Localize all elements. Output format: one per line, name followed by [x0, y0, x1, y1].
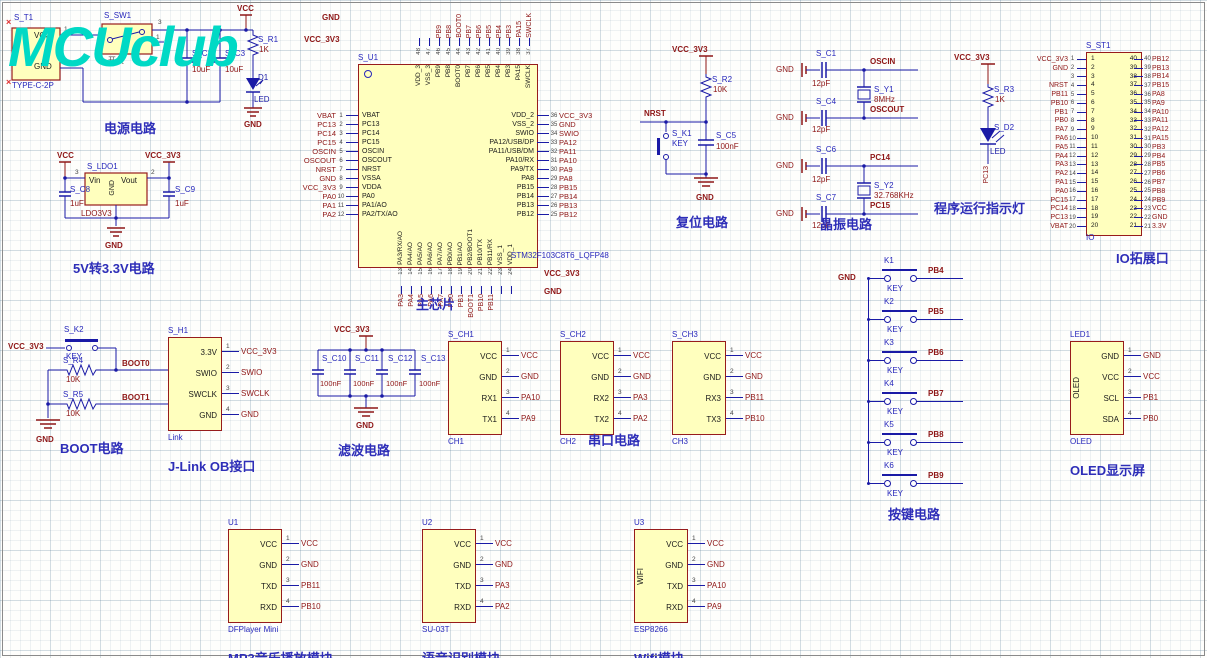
chip-bottom-net[interactable] — [496, 286, 506, 294]
vcc33-port[interactable]: VCC_3V3 — [954, 54, 990, 62]
module-pin[interactable]: 3PA10 — [688, 575, 726, 596]
chip-designator[interactable]: S_U1 — [358, 54, 378, 62]
chip-bottom-net[interactable]: BOOT1 — [466, 286, 476, 318]
schematic-sheet: MCUclub S_T1 VCC GND 1 — [0, 0, 1207, 658]
io-pin[interactable]: 34PA10 — [1134, 108, 1192, 117]
chip-pin[interactable]: VBAT1 — [296, 111, 358, 120]
key-designator: K6 — [884, 462, 894, 470]
voice-module[interactable]: U2 VCCGNDTXDRXD 1VCC 2GND 3PA3 4PA2 SU-0… — [422, 518, 542, 658]
ldo-title: 5V转3.3V电路 — [73, 262, 155, 275]
chip-pin[interactable]: 33PA12 — [537, 138, 599, 147]
chip-top-net[interactable]: SWCLK — [524, 13, 534, 46]
io-pin[interactable]: PA115 — [1028, 178, 1086, 187]
chip-pin[interactable]: 31PA10 — [537, 156, 599, 165]
key-designator: K4 — [884, 380, 894, 388]
module-pin[interactable]: 3PA3 — [476, 575, 513, 596]
vcc33-port[interactable]: VCC_3V3 — [334, 326, 370, 334]
io-pin[interactable]: 32PA12 — [1134, 125, 1192, 134]
uart-ch2-module[interactable]: S_CH2 VCCGNDRX2TX2 1VCC 2GND 3PA3 4PA2 C… — [560, 330, 680, 446]
gnd-port[interactable]: GND — [322, 14, 340, 22]
gnd-port[interactable]: GND — [544, 288, 562, 296]
module-pin[interactable]: 2GND — [476, 554, 513, 575]
r4-designator[interactable]: S_R4 — [63, 357, 83, 365]
module-pin[interactable]: 2GND — [726, 366, 765, 387]
vcc33-port[interactable]: VCC_3V3 — [544, 270, 580, 278]
net-label[interactable]: OSCOUT — [870, 106, 904, 114]
io-pin[interactable]: PA214 — [1028, 169, 1086, 178]
chip-part-number: STM32F103C8T6_LQFP48 — [511, 252, 609, 260]
chip-bottom-net[interactable]: PB1 — [456, 286, 466, 307]
t1-footprint: TYPE-C-2P — [12, 82, 54, 90]
io-pin[interactable]: 39PB13 — [1134, 64, 1192, 73]
key-net-label: PB4 — [928, 267, 944, 275]
key-switch[interactable]: K1 KEY PB4 — [868, 256, 978, 297]
chip-right-pins: 36VCC_3V3 35GND 34SWIO 33PA12 32PA11 31P… — [537, 111, 599, 219]
chip-top-net[interactable]: PB9 — [434, 25, 444, 46]
k1-designator[interactable]: S_K1 — [672, 130, 692, 138]
gnd-port[interactable]: GND — [776, 114, 794, 122]
chip-pin[interactable]: 29PA8 — [537, 174, 599, 183]
gnd-port[interactable]: GND — [776, 162, 794, 170]
chip-bottom-net[interactable]: PB11 — [486, 286, 496, 311]
vcc-port[interactable]: VCC — [237, 5, 254, 13]
ldo-circuit[interactable]: VCC VCC_3V3 S_LDO1 Vin Vout GND 3 2 S_C8… — [45, 148, 235, 282]
module-pin[interactable]: 1VCC — [502, 345, 540, 366]
gnd-port[interactable]: GND — [36, 436, 54, 444]
chip-pin[interactable]: PC143 — [296, 129, 358, 138]
main-chip-block[interactable]: GND VCC_3V3 PB9PB8BOOT0PB7PB6PB5PB4PB3PA… — [296, 8, 626, 320]
chip-top-net[interactable]: PB5 — [484, 25, 494, 46]
module-pin[interactable]: 3PB1 — [1124, 387, 1161, 408]
chip-pin[interactable]: 32PA11 — [537, 147, 599, 156]
module-pin[interactable]: 3PB11 — [726, 387, 765, 408]
chip-body[interactable]: VDD_3VSS_3PB9PB8BOOT0PB7PB6PB5PB4PB3PA15… — [358, 64, 538, 268]
chip-pin[interactable]: PA111 — [296, 201, 358, 210]
module-footprint: Link — [168, 433, 288, 442]
module-pin[interactable]: 3PA3 — [614, 387, 651, 408]
key-designator: K1 — [884, 257, 894, 265]
filter-cap[interactable]: S_C10100nF — [318, 354, 351, 388]
io-pin[interactable]: 25PB8 — [1134, 187, 1192, 196]
chip-top-net[interactable]: PB4 — [494, 25, 504, 46]
io-pin[interactable]: PC1319 — [1028, 213, 1086, 222]
module-pin[interactable]: 1VCC — [614, 345, 651, 366]
io-pin[interactable]: 40PB12 — [1134, 55, 1192, 64]
io-pin[interactable]: VBAT20 — [1028, 222, 1086, 231]
module-pin[interactable]: 2GND — [614, 366, 651, 387]
cap-designator[interactable]: S_C4 — [816, 98, 836, 106]
module-pin[interactable]: 2GND — [688, 554, 726, 575]
boot-title: BOOT电路 — [60, 442, 124, 455]
module-pin[interactable]: 4PA2 — [476, 596, 513, 617]
io-pin[interactable]: 38PB14 — [1134, 73, 1192, 82]
run-led-title: 程序运行指示灯 — [934, 202, 1025, 215]
module-pin[interactable]: 2VCC — [1124, 366, 1161, 387]
key-designator: K5 — [884, 421, 894, 429]
d1-value: LED — [254, 96, 270, 104]
chip-pin[interactable]: VCC_3V39 — [296, 183, 358, 192]
chip-pin[interactable]: 30PA9 — [537, 165, 599, 174]
chip-title: 主芯片 — [416, 298, 455, 311]
reset-title: 复位电路 — [676, 216, 728, 229]
io-right-pins: 40PB12 39PB13 38PB14 37PB15 36PA8 35PA9 … — [1134, 55, 1192, 231]
chip-top-nets: PB9PB8BOOT0PB7PB6PB5PB4PB3PA15SWCLK — [414, 10, 534, 46]
power-title: 电源电路 — [104, 122, 156, 135]
io-pin[interactable]: PC1517 — [1028, 196, 1086, 205]
chip-pin[interactable]: OSCIN5 — [296, 147, 358, 156]
chip-pin[interactable]: 28PB15 — [537, 183, 599, 192]
chip-bottom-nets: PA3PA4PA5PA6PA7PB0PB1BOOT1PB10PB11 — [396, 286, 516, 314]
filter-title: 滤波电路 — [338, 444, 390, 457]
noerc-mark: × — [6, 78, 11, 87]
chip-pin[interactable]: GND8 — [296, 174, 358, 183]
crystal-group[interactable]: GND S_C1 12pF OSCIN S_Y1 8MHz S_C4 12pF … — [768, 46, 928, 142]
chip-bottom-net[interactable]: PA4 — [406, 286, 416, 307]
chip-right-names: VDD_2VSS_2SWIOPA12/USB/DPPA11/USB/DMPA10… — [489, 111, 534, 219]
boot-circuit[interactable]: VCC_3V3 S_K2 KEY S_R4 10K BOOT0 S_R5 10K… — [8, 300, 186, 460]
chip-bottom-net[interactable]: PA3 — [396, 286, 406, 307]
key-designator: K2 — [884, 298, 894, 306]
module-pin[interactable]: 1VCC_3V3 — [222, 341, 277, 362]
chip-top-nums: 484746454443424140393837 — [414, 48, 534, 62]
chip-pin[interactable]: PA212 — [296, 210, 358, 219]
chip-top-net[interactable]: PB8 — [444, 25, 454, 46]
module-title: J-Link OB接口 — [168, 456, 288, 475]
nrst-net-label[interactable]: NRST — [644, 110, 666, 118]
key-net-label: PB7 — [928, 390, 944, 398]
key-net-label: PB5 — [928, 308, 944, 316]
module-designator[interactable]: S_H1 — [168, 326, 288, 335]
io-pin[interactable]: PA511 — [1028, 143, 1086, 152]
filter-cap[interactable]: S_C13100nF — [417, 354, 450, 388]
module-pin[interactable]: 4PB0 — [1124, 408, 1161, 429]
r1-designator[interactable]: S_R1 — [258, 36, 278, 44]
d2-designator[interactable]: S_D2 — [994, 124, 1014, 132]
vcc33-port[interactable]: VCC_3V3 — [672, 46, 708, 54]
io-pin[interactable]: 26PB7 — [1134, 178, 1192, 187]
module-pin[interactable]: 4PA2 — [614, 408, 651, 429]
pc13-net-label[interactable]: PC13 — [983, 166, 990, 184]
module-pin[interactable]: 4PA9 — [688, 596, 726, 617]
key-switch[interactable]: K6 KEY PB9 — [868, 461, 978, 502]
oled-module[interactable]: LED1 OLED GNDVCCSCLSDA 1GND 2VCC 3PB1 4P… — [1070, 330, 1190, 479]
module-pin[interactable]: 3SWCLK — [222, 383, 277, 404]
io-pin[interactable]: 37PB15 — [1134, 81, 1192, 90]
chip-bottom-nums: 131415161718192021222324 — [396, 268, 516, 284]
chip-bottom-net[interactable] — [506, 286, 516, 294]
chip-top-net[interactable]: PB6 — [474, 25, 484, 46]
cap-designator[interactable]: S_C7 — [816, 194, 836, 202]
io-pin[interactable]: 28PB5 — [1134, 161, 1192, 170]
mcuclub-logo: MCUclub — [8, 14, 237, 79]
module-pin[interactable]: 1GND — [1124, 345, 1161, 366]
chip-pin[interactable]: OSCOUT6 — [296, 156, 358, 165]
io-pin[interactable]: 36PA8 — [1134, 90, 1192, 99]
module-pin[interactable]: 2GND — [502, 366, 540, 387]
key-rows: K1 KEY PB4 K2 KEY PB5 K3 KEY PB6 — [868, 256, 978, 502]
serial-title: 串口电路 — [588, 434, 640, 447]
gnd-port[interactable]: GND — [356, 422, 374, 430]
io-pin[interactable]: NRST4 — [1028, 81, 1086, 90]
chip-pin[interactable]: 35GND — [537, 120, 599, 129]
vcc33-port[interactable]: VCC_3V3 — [145, 152, 181, 160]
c5-designator[interactable]: S_C5 — [716, 132, 736, 140]
chip-pin[interactable]: 34SWIO — [537, 129, 599, 138]
key-net-label: PB6 — [928, 349, 944, 357]
chip-top-net[interactable]: PB3 — [504, 25, 514, 46]
key-net-label: PB8 — [928, 431, 944, 439]
io-pin[interactable]: 33PA11 — [1134, 117, 1192, 126]
io-pin[interactable]: 31PA15 — [1134, 134, 1192, 143]
cap-designator[interactable]: S_C1 — [816, 50, 836, 58]
module-pin[interactable]: 1VCC — [476, 533, 513, 554]
ldo-designator[interactable]: S_LDO1 — [87, 163, 118, 171]
key-designator: K3 — [884, 339, 894, 347]
uart-ch3-module[interactable]: S_CH3 VCCGNDRX3TX3 1VCC 2GND 3PB11 4PB10… — [672, 330, 792, 446]
module-pin[interactable]: 4PB10 — [726, 408, 765, 429]
chip-pin[interactable]: 26PB13 — [537, 201, 599, 210]
key-net-label: PB9 — [928, 472, 944, 480]
io-pin[interactable]: PB106 — [1028, 99, 1086, 108]
module-pin[interactable]: 1VCC — [282, 533, 321, 554]
io-pin[interactable]: VCC_3V31 — [1028, 55, 1086, 64]
gnd-port[interactable]: GND — [244, 121, 262, 129]
io-pin[interactable]: 35PA9 — [1134, 99, 1192, 108]
io-pin[interactable]: 23VCC — [1134, 205, 1192, 214]
module-pin[interactable]: 3PB11 — [282, 575, 321, 596]
vcc33-port[interactable]: VCC_3V3 — [8, 343, 44, 351]
io-pin[interactable]: 3 — [1028, 73, 1086, 82]
vcc33-port[interactable]: VCC_3V3 — [304, 36, 340, 44]
r1-value: 1K — [259, 46, 269, 54]
module-pin[interactable]: 4PA9 — [502, 408, 540, 429]
net-label[interactable]: OSCIN — [870, 58, 895, 66]
uart-ch1-module[interactable]: S_CH1 VCCGNDRX1TX1 1VCC 2GND 3PA10 4PA9 … — [448, 330, 568, 446]
jlink-module[interactable]: S_H1 3.3VSWIOSWCLKGND 1VCC_3V3 2SWIO 3SW… — [168, 326, 288, 475]
io-left-pins: VCC_3V31 GND2 3 NRST4 PB115 PB106 PB17 P… — [1028, 55, 1086, 231]
io-pin[interactable]: PC1418 — [1028, 205, 1086, 214]
filter-circuit[interactable]: VCC_3V3 S_C10100nF S_C11100nF S_C12100nF… — [290, 326, 442, 466]
boot0-net-label[interactable]: BOOT0 — [122, 360, 150, 368]
io-pin[interactable]: 27PB6 — [1134, 169, 1192, 178]
key-circuit[interactable]: GND K1 KEY PB4 K2 KEY PB5 K3 KE — [838, 256, 978, 534]
mp3-module[interactable]: U1 VCCGNDTXDRXD 1VCC 2GND 3PB11 4PB10 DF… — [228, 518, 348, 658]
io-pin[interactable]: PA79 — [1028, 125, 1086, 134]
cap-designator[interactable]: S_C6 — [816, 146, 836, 154]
io-pin[interactable]: GND2 — [1028, 64, 1086, 73]
chip-bottom-net[interactable]: PB10 — [476, 286, 486, 311]
chip-pin[interactable]: 27PB14 — [537, 192, 599, 201]
chip-top-net[interactable] — [414, 38, 424, 46]
gnd-port[interactable]: GND — [838, 274, 856, 282]
chip-top-names: VDD_3VSS_3PB9PB8BOOT0PB7PB6PB5PB4PB3PA15… — [415, 65, 537, 111]
io-pin[interactable]: PA610 — [1028, 134, 1086, 143]
io-pin[interactable]: 213.3V — [1134, 222, 1192, 231]
module-pin[interactable]: 1VCC — [726, 345, 765, 366]
io-designator[interactable]: S_ST1 — [1086, 42, 1110, 50]
k2-designator[interactable]: S_K2 — [64, 326, 84, 334]
module-pin[interactable]: 2GND — [282, 554, 321, 575]
key-switch[interactable]: K3 KEY PB6 — [868, 338, 978, 379]
filter-cap[interactable]: S_C11100nF — [351, 354, 384, 388]
chip-left-names: VBATPC13PC14PC15OSCINOSCOUTNRSTVSSAVDDAP… — [362, 111, 398, 219]
chip-pin[interactable]: PA010 — [296, 192, 358, 201]
io-pin[interactable]: 30PB3 — [1134, 143, 1192, 152]
io-pin[interactable]: PA412 — [1028, 152, 1086, 161]
crystal-designator[interactable]: S_Y1 — [874, 86, 894, 94]
io-footprint: IO — [1086, 234, 1094, 242]
io-pin[interactable]: PB115 — [1028, 90, 1086, 99]
keys-title: 按键电路 — [888, 508, 940, 521]
chip-pin[interactable]: 36VCC_3V3 — [537, 111, 599, 120]
c8-designator[interactable]: S_C8 — [70, 186, 90, 194]
gnd-port[interactable]: GND — [105, 242, 123, 250]
filter-caps: S_C10100nF S_C11100nF S_C12100nF S_C1310… — [318, 354, 450, 388]
chip-top-net[interactable]: PA15 — [514, 21, 524, 46]
module-body[interactable]: 3.3VSWIOSWCLKGND — [168, 337, 222, 431]
filter-cap[interactable]: S_C12100nF — [384, 354, 417, 388]
chip-pin[interactable]: PC154 — [296, 138, 358, 147]
key-switch[interactable]: K4 KEY PB7 — [868, 379, 978, 420]
net-label[interactable]: PC14 — [870, 154, 890, 162]
crystal-title: 晶振电路 — [820, 218, 872, 231]
chip-top-net[interactable] — [424, 38, 434, 46]
io-pin[interactable]: PB17 — [1028, 108, 1086, 117]
chip-pin[interactable]: PC132 — [296, 120, 358, 129]
vcc-port[interactable]: VCC — [57, 152, 74, 160]
io-pin[interactable]: 24PB9 — [1134, 196, 1192, 205]
r3-designator[interactable]: S_R3 — [994, 86, 1014, 94]
module-pin[interactable]: 1VCC — [688, 533, 726, 554]
key-switch[interactable]: K5 KEY PB8 — [868, 420, 978, 461]
io-expansion-block[interactable]: S_ST1 1234567891011121314151617181920 40… — [1028, 26, 1206, 268]
net-label[interactable]: PC15 — [870, 202, 890, 210]
chip-left-pins: VBAT1 PC132 PC143 PC154 OSCIN5 OSCOUT6 N… — [296, 111, 358, 219]
key-switch[interactable]: K2 KEY PB5 — [868, 297, 978, 338]
io-pin[interactable]: 29PB4 — [1134, 152, 1192, 161]
module-pin[interactable]: 4GND — [222, 404, 277, 425]
io-pin[interactable]: PA016 — [1028, 187, 1086, 196]
gnd-port[interactable]: GND — [696, 194, 714, 202]
io-pin[interactable]: 22GND — [1134, 213, 1192, 222]
io-title: IO拓展口 — [1116, 252, 1169, 265]
ldo-part: LDO3V3 — [81, 210, 112, 218]
r2-designator[interactable]: S_R2 — [712, 76, 732, 84]
r5-designator[interactable]: S_R5 — [63, 391, 83, 399]
chip-pin[interactable]: 25PB12 — [537, 210, 599, 219]
gnd-port[interactable]: GND — [776, 66, 794, 74]
io-pin[interactable]: PA313 — [1028, 161, 1086, 170]
d1-designator[interactable]: D1 — [258, 74, 268, 82]
chip-top-net[interactable]: BOOT0 — [454, 14, 464, 46]
module-pin[interactable]: 3PA10 — [502, 387, 540, 408]
io-pin[interactable]: PB08 — [1028, 117, 1086, 126]
crystal-circuit[interactable]: GND S_C1 12pF OSCIN S_Y1 8MHz S_C4 12pF … — [768, 36, 928, 240]
boot1-net-label[interactable]: BOOT1 — [122, 394, 150, 402]
c9-designator[interactable]: S_C9 — [175, 186, 195, 194]
wifi-module[interactable]: U3 WIFI VCCGNDTXDRXD 1VCC 2GND 3PA10 4PA… — [634, 518, 754, 658]
module-pin[interactable]: 2SWIO — [222, 362, 277, 383]
chip-top-net[interactable]: PB7 — [464, 25, 474, 46]
gnd-port[interactable]: GND — [776, 210, 794, 218]
crystal-designator[interactable]: S_Y2 — [874, 182, 894, 190]
chip-pin[interactable]: NRST7 — [296, 165, 358, 174]
module-pin[interactable]: 4PB10 — [282, 596, 321, 617]
